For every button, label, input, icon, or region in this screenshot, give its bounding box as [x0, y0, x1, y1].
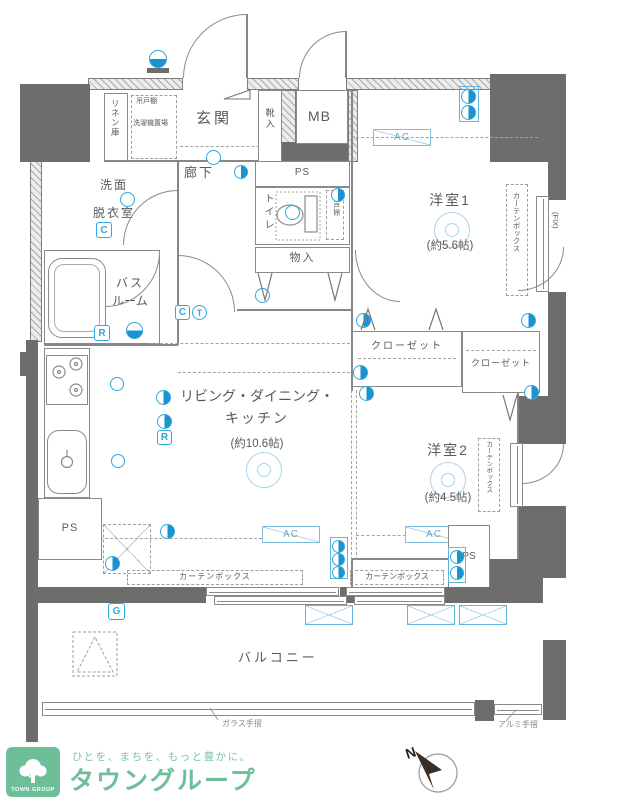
hall-ldk-door-arc: [178, 255, 235, 312]
bedroom1-size: (約5.6帖): [400, 240, 500, 254]
compass: N: [398, 742, 472, 800]
wall-left-lower: [26, 340, 38, 742]
bedroom2-window: [346, 587, 445, 596]
linen-label: リネン庫: [110, 99, 120, 137]
outdoor-unit-space: [305, 605, 353, 625]
wall-light-icon: [521, 313, 536, 328]
column-ps-right: [490, 559, 543, 603]
stove: [46, 355, 88, 405]
wall-light-icon: [234, 165, 248, 179]
doorbell-base: [147, 68, 169, 73]
downlight-icon: [110, 377, 124, 391]
wall-top-mid: [247, 78, 299, 90]
mb-door-leaf: [345, 31, 347, 78]
wall-light-icon: [105, 556, 120, 571]
escape-hatch: [73, 632, 117, 676]
column-top-left: [20, 84, 90, 162]
closet1-pole: [358, 358, 456, 359]
wall-light-icon: [332, 540, 345, 553]
bath-remote-icon: R: [94, 325, 110, 341]
beam-line: [356, 535, 406, 536]
wall-light-icon: [353, 365, 368, 380]
bedroom1-label: 洋室1: [400, 192, 500, 209]
wall-mb-right: [348, 90, 358, 162]
ldk-label-2: キッチン: [162, 410, 352, 427]
curtain-box-label-b2: カーテンボックス: [484, 441, 492, 493]
mb-door-arc: [299, 31, 346, 78]
downlight-icon: [206, 150, 221, 165]
ldk-label-1: リビング・ダイニング・: [162, 388, 352, 405]
outlet-icon: C: [175, 305, 190, 320]
wall-light-icon: [359, 386, 374, 401]
entrance-door-arc: [183, 14, 247, 78]
bathtub-inner: [54, 264, 100, 332]
mb-label: MB: [308, 108, 331, 125]
curtain-box-label-b2b: カーテンボックス: [350, 572, 444, 582]
ldk-size: (約10.6帖): [162, 438, 352, 452]
closet-1: [352, 331, 462, 387]
downlight-icon: [255, 288, 270, 303]
glass-rail-label: ガラス手摺: [222, 719, 262, 729]
casement-arc-b2: [522, 444, 564, 484]
logo-badge-text: TOWN GROUP: [11, 787, 54, 793]
ldk-window: [214, 596, 347, 605]
shoe-label: 靴入: [264, 108, 275, 130]
ac-box-bedroom1: AC: [373, 129, 431, 146]
tree-icon: [16, 757, 50, 787]
glass-railing: [42, 702, 475, 716]
storage-label: 物入: [255, 252, 350, 265]
casement-arc-b1: [518, 247, 564, 291]
washer-label: 洗濯機置場: [133, 120, 168, 128]
partition: [352, 558, 450, 560]
bath-light-icon: [126, 322, 143, 339]
bedroom2-window: [354, 596, 445, 605]
beam-line: [150, 343, 350, 344]
brand-name: タウングループ: [69, 761, 257, 797]
fix-label: (FIX): [551, 212, 560, 229]
closet1-label: クローゼット: [352, 341, 462, 353]
town-group-logo: TOWN GROUP: [6, 747, 60, 797]
sink: [47, 430, 87, 494]
ps-top-label: PS: [255, 167, 350, 179]
entrance-label: 玄関: [196, 110, 232, 128]
downlight-icon: [285, 205, 300, 220]
partition: [44, 344, 178, 346]
kitchen-remote-icon: R: [157, 430, 172, 445]
bottom-wall-3: [444, 587, 490, 603]
balcony-label: バルコニー: [238, 650, 318, 666]
ceiling-light-icon: [246, 452, 282, 488]
wall-light-icon: [450, 566, 464, 580]
entry-flag: [224, 90, 250, 99]
partition: [237, 309, 353, 311]
downlight-icon: [120, 192, 135, 207]
railing-post: [475, 700, 494, 721]
bedroom1-door-arc: [355, 250, 400, 302]
closet2-pole: [466, 350, 536, 351]
curtain-box-label-ldk: カーテンボックス: [127, 572, 303, 582]
column-right-3: [518, 396, 566, 444]
partition: [351, 90, 353, 311]
wall-left-upper: [30, 160, 42, 342]
outlet-icon: C: [96, 222, 112, 238]
wall-light-icon: [450, 550, 464, 564]
hanging-shelf-label: 吊戸棚: [136, 98, 157, 106]
wall-light-icon: [156, 390, 171, 405]
wall-light-icon: [356, 313, 371, 328]
wall-light-icon: [160, 524, 175, 539]
outdoor-unit-space: [407, 605, 455, 625]
gas-outlet-icon: G: [108, 603, 125, 620]
washroom-label-1: 洗面: [74, 178, 154, 192]
bottom-wall-1: [38, 587, 206, 603]
floorplan-canvas: リネン庫 吊戸棚 洗濯機置場 玄関 靴入 MB 廊下 PS トイレ 吊戸棚 物入…: [0, 0, 622, 800]
ac-box-ldk: AC: [262, 526, 320, 543]
entrance-door-leaf: [246, 14, 248, 78]
curtain-box-label-b1: カーテンボックス: [512, 192, 521, 252]
beam-line: [178, 372, 350, 373]
wall-light-icon: [332, 566, 345, 579]
column-top-right: [490, 74, 566, 162]
wall-light-icon: [461, 105, 476, 120]
mb-shaft: [282, 142, 348, 161]
compass-n-label: N: [403, 744, 418, 762]
corridor-label: 廊下: [184, 165, 214, 181]
closet2-label: クローゼット: [462, 358, 540, 369]
thermostat-icon: T: [192, 305, 207, 320]
toilet-label: トイレ: [261, 193, 273, 232]
wall-light-icon: [524, 385, 539, 400]
aluminum-railing: [494, 704, 542, 715]
doorbell-icon: [149, 50, 167, 68]
wall-shoe-mb: [281, 90, 296, 144]
ldk-window: [206, 587, 339, 596]
downlight-icon: [111, 454, 125, 468]
left-tab: [20, 352, 26, 376]
column-balcony-right: [543, 640, 566, 720]
wall-top-left: [88, 78, 183, 90]
column-right-1: [548, 162, 566, 200]
alum-rail-label: アルミ手摺: [498, 720, 538, 730]
wall-light-icon: [157, 414, 172, 429]
wall-light-icon: [461, 89, 476, 104]
column-right-2: [548, 292, 566, 396]
wall-light-icon: [331, 188, 345, 202]
ps-kitchen-label: PS: [38, 522, 102, 535]
wall-light-icon: [332, 553, 345, 566]
outdoor-unit-space: [459, 605, 507, 625]
